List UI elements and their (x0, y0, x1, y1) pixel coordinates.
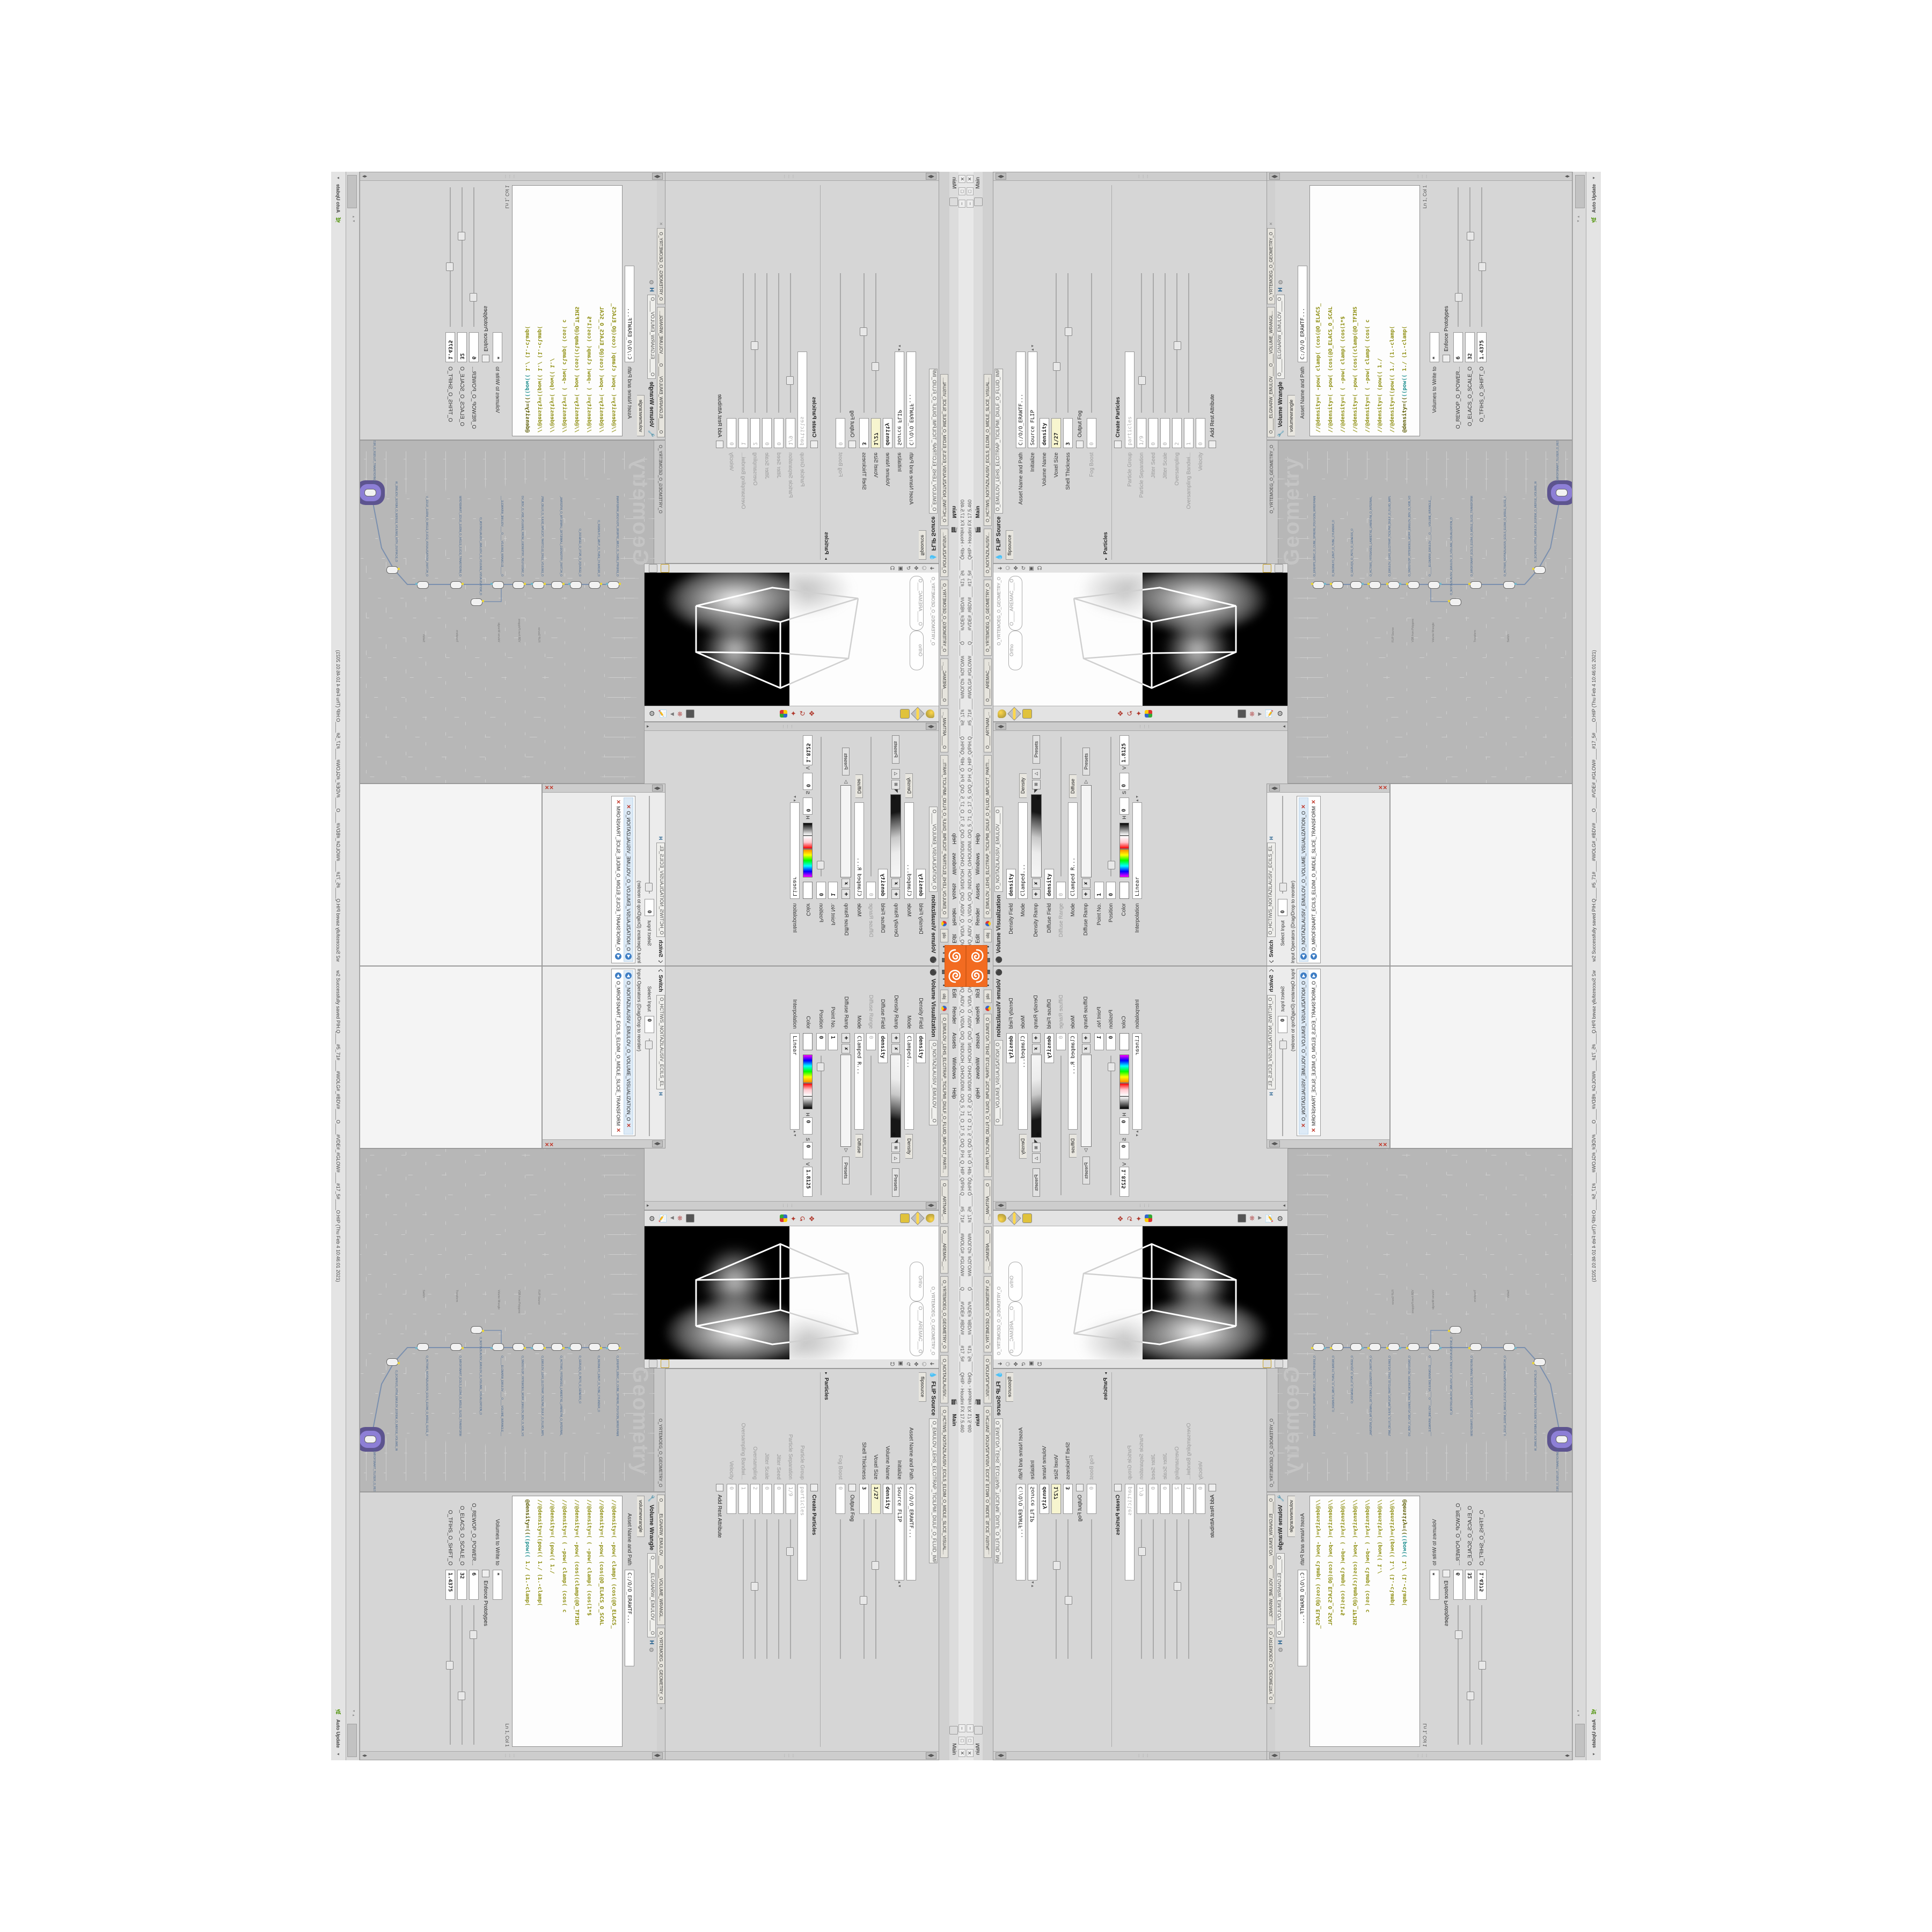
minimize-button[interactable]: ‒ (967, 1724, 974, 1732)
pane-arrow-left-icon[interactable]: ◂ (647, 1203, 649, 1209)
ramp-delete-point-icon[interactable]: ✘ (892, 1044, 901, 1053)
density-mode-select[interactable]: Clamped... (904, 1033, 914, 1130)
vex-code-editor[interactable]: //@density=( -pow( clamp( (cos(@O_ELACS_… (1309, 1496, 1420, 1747)
input-operator-row[interactable]: ◀ O_MROFSNART_ECILS_ELDIM_O_MIDLE_SLICE_… (613, 797, 623, 962)
remove-input-icon[interactable]: ✕ (1311, 1128, 1317, 1132)
switch-path[interactable]: O_HCTIWS_NOITAZILAUSIV_ECILS_EL (656, 843, 665, 937)
create-particles-checkbox[interactable] (810, 441, 818, 448)
handles-tool-icon[interactable]: ☊ (1037, 1361, 1042, 1367)
scale-tool-icon[interactable]: ▣ (898, 1361, 903, 1367)
ramp-flip-icon[interactable]: △ (1032, 769, 1041, 779)
diffuse-range-slider[interactable] (870, 737, 872, 876)
diffuse-range-field[interactable]: 0 (866, 1033, 876, 1050)
diffuse-ramp-widget[interactable] (841, 1055, 852, 1147)
position-slider[interactable] (821, 737, 822, 876)
fog-boost-field[interactable]: 0 (1087, 1484, 1096, 1514)
tab-geometry[interactable]: O_YRTEMOEG_O_GEOMETRY_O (984, 1276, 992, 1352)
tab-visualization[interactable]: O_NOITAZILAUSIV... (940, 529, 948, 577)
oversampling-bw-field[interactable]: 1 (738, 1484, 748, 1514)
menu-help[interactable]: Help (975, 1088, 981, 1099)
pane-arrow-right-icon[interactable]: ▸ (1567, 173, 1570, 179)
ramp-add-point-icon[interactable]: ✚ (842, 889, 851, 899)
output-fog-checkbox[interactable] (1076, 441, 1084, 448)
ortho-pill[interactable]: Ortho (1008, 1262, 1022, 1301)
v-field[interactable]: 1.8125 (803, 1167, 813, 1197)
flip-voxel-size-field[interactable]: 1/27 (1051, 1484, 1061, 1514)
pane-header[interactable]: ◀▶ ✕ ✕ (543, 784, 665, 793)
node-slice-switch[interactable] (417, 1343, 429, 1351)
density-mode-select[interactable]: Clamped... (904, 802, 914, 899)
ramp-delete-point-icon[interactable]: ✘ (892, 879, 901, 888)
ramp-marker-icon[interactable]: ▷ (1083, 1148, 1089, 1152)
diffuse-ramp-tab[interactable]: Diffuse (855, 1134, 863, 1158)
node-volume-visualization[interactable] (1450, 1326, 1461, 1334)
flip-shell-field[interactable]: 3 (859, 1484, 869, 1514)
pane-header[interactable]: ◀▶ ⋮⋮⋮ ◂ (993, 1201, 1287, 1210)
diffuse-range-field[interactable]: 0 (1056, 882, 1066, 899)
wheel-icon[interactable]: ⚙ (1277, 709, 1283, 718)
spare-shift-field[interactable]: 1.4375 (445, 1570, 455, 1600)
position-slider[interactable] (821, 1056, 822, 1195)
close-icon[interactable]: ✕ (549, 785, 553, 791)
ramp-delete-point-icon[interactable]: ✘ (1082, 879, 1091, 888)
wrangle-pane-tab-2[interactable]: O_YRTEMOEG_O_GEOMETRY_O (1267, 228, 1275, 304)
move-tool-icon[interactable]: ✥ (1013, 566, 1018, 572)
density-presets-button[interactable]: Presets (892, 735, 900, 764)
ramp-flip-icon[interactable]: △ (892, 1153, 901, 1163)
s-field[interactable]: 0 (803, 773, 813, 790)
view-diamond-icon[interactable] (911, 707, 924, 720)
pane-header[interactable]: ◀▶ ✕ ✕ (543, 1139, 665, 1148)
oversampling-field[interactable]: 2 (1172, 1484, 1182, 1514)
diffuse-ramp-widget[interactable] (1081, 1055, 1092, 1147)
section-collapse-icon[interactable]: ▸ (1103, 1372, 1108, 1374)
select-input-field[interactable]: 0 (645, 1016, 654, 1033)
pane-grip-icon[interactable]: ⋮⋮⋮ (782, 1754, 795, 1758)
node-volume-visualization[interactable] (471, 598, 482, 606)
density-ramp-tab[interactable]: Density (1019, 1134, 1027, 1159)
view-cone-icon[interactable] (926, 1214, 934, 1223)
density-ramp-widget[interactable] (891, 1055, 902, 1138)
ramp-delete-point-icon[interactable]: ✘ (1032, 879, 1041, 888)
ortho-pill[interactable]: Ortho (1008, 631, 1022, 670)
view-box-icon[interactable] (900, 709, 910, 719)
pane-grip-icon[interactable]: ⋮⋮⋮ (1138, 1204, 1151, 1208)
remove-input-icon[interactable]: ✕ (1311, 800, 1317, 804)
view-diamond-icon[interactable] (1007, 1211, 1021, 1225)
menu-render[interactable]: Render (951, 908, 957, 926)
volviz-path[interactable]: O_NOITAZILAUSIV_EMULOV____O (929, 807, 938, 892)
tab-mantra[interactable]: O____ARTNAM_... (940, 708, 948, 753)
pane-header[interactable]: ◀▶ ⋮⋮⋮ ◂ ▸ (1267, 172, 1572, 181)
render-ipr-icon[interactable]: ✦ (791, 1214, 796, 1223)
menu-assets[interactable]: Assets (951, 1033, 957, 1049)
oversampling-slider[interactable] (755, 273, 756, 413)
spare-power-field[interactable]: 6 (469, 1570, 479, 1600)
spare-shift-field[interactable]: 1.4375 (445, 332, 455, 362)
node-geometry-switch[interactable] (551, 1343, 563, 1351)
scale-tool-icon[interactable]: ▣ (898, 566, 903, 572)
pane-header[interactable]: ◀▶ ⋮⋮⋮ ◂ ▸ (1267, 1751, 1572, 1760)
wrangle-tab[interactable]: volumewrangle (637, 395, 645, 436)
wrangle-pane-tab-1[interactable]: O_____ELGNARW_EMULOV____O____VOLUME_WRAN… (657, 307, 665, 437)
render-region-icon[interactable]: ↺ (800, 709, 806, 718)
tab-geometry[interactable]: O_YRTEMOEG_O_GEOMETRY_O (984, 580, 992, 656)
node-geometry-switch[interactable] (1369, 581, 1381, 589)
node-volume-visualization[interactable] (471, 1326, 482, 1334)
input-operator-row[interactable]: ◀ O_NOITAZILAUSIV_EMULOV_O_VOLUME_VISUAL… (1299, 797, 1308, 962)
spare-scale-slider[interactable] (1469, 1605, 1470, 1745)
menu-assets[interactable]: Assets (975, 1033, 981, 1049)
particle-sep-slider[interactable] (790, 1519, 791, 1659)
handles-tool-icon[interactable]: ☊ (890, 566, 895, 572)
move-tool-icon[interactable]: ✥ (914, 566, 918, 572)
view-cone-icon[interactable] (998, 709, 1006, 718)
tab-close-icon[interactable]: ✕ (1269, 222, 1274, 226)
enforce-prototypes-checkbox[interactable] (1443, 1570, 1450, 1577)
gear-icon[interactable]: ⚙ (1277, 1647, 1284, 1652)
spare-scale-field[interactable]: 32 (1465, 332, 1475, 362)
magnet-snap-icon[interactable]: ⎈ (1249, 709, 1255, 718)
pane-arrow-right-icon[interactable]: ▸ (362, 173, 365, 179)
auto-update-select[interactable]: Auto Update (335, 1719, 341, 1748)
scrollbar-column[interactable]: ◂▸ (1572, 966, 1587, 1760)
layout-grid-icon[interactable] (950, 197, 958, 206)
oversampling-bw-slider[interactable] (1188, 273, 1189, 413)
rotate-tool-icon[interactable]: ↻ (906, 1361, 911, 1367)
flip-voxel-size-field[interactable]: 1/27 (871, 418, 881, 448)
flip-path[interactable]: O_EMULOV_LEHS_ELCITRAP_TICILPMI_DIULF_O_… (994, 1418, 1003, 1563)
jitter-seed-field[interactable]: 0 (1148, 418, 1158, 448)
node-vdb-from-polygons[interactable] (513, 581, 524, 589)
jitter-scale-field[interactable]: 0 (1160, 418, 1170, 448)
close-button[interactable]: ✕ (967, 1749, 974, 1757)
tab-slice-visual[interactable]: O_HCTIWS_NOITAZILAUSIV_ECILS_ELDIM_O_MID… (984, 374, 992, 526)
shell-slider[interactable] (1067, 1519, 1069, 1659)
pane-split-icon[interactable]: ◀▶ (1269, 173, 1280, 180)
diffuse-ramp-widget[interactable] (1081, 785, 1092, 877)
spare-power-slider[interactable] (473, 1605, 474, 1745)
color-swatch[interactable] (803, 882, 813, 899)
select-input-field[interactable]: 0 (645, 899, 654, 916)
color-swatch[interactable] (1119, 1033, 1129, 1050)
node-merge[interactable] (386, 566, 398, 574)
close-button[interactable]: ✕ (967, 175, 974, 183)
ramp-flip-icon[interactable]: △ (1032, 1153, 1041, 1163)
pane-split-icon[interactable]: ◀▶ (1269, 1140, 1280, 1147)
flip-volume-name-field[interactable]: density (1040, 418, 1049, 448)
desktop-tab-main-2[interactable]: Main (951, 177, 957, 189)
snap-grid-icon[interactable] (661, 564, 669, 573)
node-slice-switch[interactable] (1503, 581, 1515, 589)
hue-gradient-strip[interactable] (803, 849, 813, 877)
position-field[interactable]: 0 (1106, 1033, 1116, 1050)
render-region-icon[interactable]: ↺ (1126, 1214, 1132, 1223)
value-gradient-strip[interactable] (1119, 823, 1129, 836)
pane-grip-icon[interactable]: ⋮⋮⋮ (1416, 1754, 1429, 1758)
jitter-scale-slider[interactable] (766, 1519, 767, 1659)
node-vdb-from-polygons[interactable] (1408, 581, 1419, 589)
menu-render[interactable]: Render (951, 1006, 957, 1024)
wrangle-path[interactable]: O_____ELGNARW_EMULOV____O (647, 1553, 656, 1637)
v-field[interactable]: 1.8125 (1119, 1167, 1129, 1197)
flip-path[interactable]: O_EMULOV_LEHS_ELCITRAP_TICILPMI_DIULF_O_… (929, 1418, 938, 1563)
density-ramp-tab[interactable]: Density (1019, 773, 1027, 798)
menu-assets[interactable]: Assets (975, 883, 981, 899)
wrangle-asset-field[interactable]: C:/O/O_ERAWTF... (625, 1570, 634, 1666)
ramp-marker-icon[interactable]: ◥ (893, 1139, 899, 1143)
switch-path[interactable]: O_HCTIWS_NOITAZILAUSIV_ECILS_EL (1267, 995, 1276, 1089)
flip-tab[interactable]: flipsource (1006, 1372, 1013, 1402)
density-presets-button[interactable]: Presets (1033, 735, 1040, 764)
density-field[interactable]: density (1006, 1033, 1016, 1063)
point-no-field[interactable]: 1 (1094, 882, 1104, 899)
tab-flip-long[interactable]: O_EMULOV_LEHS_ELCITRAP_TICILPMI_DIULF_O_… (940, 755, 948, 918)
pane-header[interactable]: ◀▶ ⋮⋮⋮ ◂ (645, 722, 939, 731)
pane-split-icon[interactable]: ◀▶ (652, 1140, 663, 1147)
desktop-tab-main[interactable]: Main (951, 1414, 957, 1426)
view-box-icon[interactable] (1022, 709, 1032, 719)
node-slice-transform[interactable] (450, 581, 462, 589)
ramp-marker-icon[interactable]: ▷ (843, 780, 849, 784)
spare-scale-field[interactable]: 32 (457, 332, 467, 362)
handles-tool-icon[interactable]: ☊ (890, 1361, 895, 1367)
oversampling-field[interactable]: 2 (750, 1484, 760, 1514)
h-field[interactable]: 0 (803, 1117, 813, 1135)
diffuse-mode-select[interactable]: Clamped R... (1068, 802, 1078, 899)
section-collapse-icon[interactable]: ▸ (1103, 558, 1108, 560)
oversampling-bw-field[interactable]: 1 (1184, 1484, 1194, 1514)
particle-sep-field[interactable]: 1/9 (1137, 1484, 1146, 1514)
tab-close-icon[interactable]: ✕ (658, 222, 663, 226)
node-result-transform-selected[interactable] (1556, 489, 1568, 496)
camera-menu-pill[interactable]: O____AREMAC___O (1008, 1301, 1022, 1356)
desktop-tab-main[interactable]: Main (951, 506, 957, 518)
render-region-icon[interactable]: ↺ (1126, 709, 1132, 718)
node-slice-transform[interactable] (1470, 1343, 1482, 1351)
multi-color-icon[interactable] (780, 1214, 787, 1222)
tab-close-icon[interactable]: ✕ (1269, 1707, 1274, 1710)
tab-obj[interactable]: obj (984, 929, 992, 942)
velocity-field[interactable]: 0 (727, 1484, 736, 1514)
hue-gradient-strip[interactable] (1119, 849, 1129, 877)
close-button[interactable]: ✕ (959, 175, 966, 183)
notes-icon[interactable]: 📝 (1265, 1214, 1274, 1223)
s-field[interactable]: 0 (1119, 773, 1129, 790)
tab-mantra[interactable]: O____ARTNAM_... (984, 708, 992, 753)
add-rest-checkbox[interactable] (716, 441, 723, 448)
particle-sep-slider[interactable] (790, 273, 791, 413)
tab-obj[interactable]: obj (940, 990, 948, 1003)
node-flip-source[interactable] (1388, 1343, 1400, 1351)
pane-header[interactable]: ◀▶ ⋮⋮⋮ ◂ ▸ (360, 1751, 665, 1760)
input-operator-row[interactable]: ◀ O_MROFSNART_ECILS_ELDIM_O_MIDLE_SLICE_… (1309, 970, 1319, 1135)
handles-tool-icon[interactable]: ☊ (1037, 566, 1042, 572)
wrangle-pane-tab-1[interactable]: O_____ELGNARW_EMULOV____O____VOLUME_WRAN… (1267, 307, 1275, 437)
tab-flip-long[interactable]: O_EMULOV_LEHS_ELCITRAP_TICILPMI_DIULF_O_… (984, 1014, 992, 1177)
viewport-render-area[interactable]: O____AREMAC___O Ortho O_YRTEMOEG_O_GEOME… (993, 1226, 1287, 1359)
density-ramp-tab[interactable]: Density (905, 1134, 913, 1159)
menu-edit[interactable]: Edit (951, 934, 957, 943)
ramp-delete-point-icon[interactable]: ✘ (842, 1044, 851, 1053)
jitter-scale-field[interactable]: 0 (762, 418, 772, 448)
ramp-expand-icon[interactable]: ⊞ (1032, 1143, 1041, 1152)
diffuse-ramp-widget[interactable] (841, 785, 852, 877)
layout-grid-icon[interactable] (974, 1726, 983, 1735)
multi-color-icon[interactable] (1145, 1214, 1152, 1222)
node-box[interactable] (1350, 1343, 1362, 1351)
wrangle-pane-tab-2[interactable]: O_YRTEMOEG_O_GEOMETRY_O (657, 1628, 665, 1704)
node-box[interactable] (570, 1343, 582, 1351)
add-rest-checkbox[interactable] (716, 1484, 723, 1491)
diffuse-ramp-tab[interactable]: Diffuse (855, 774, 863, 798)
tab-geometry[interactable]: O_YRTEMOEG_O_GEOMETRY_O (940, 1276, 948, 1352)
node-result-transform-selected[interactable] (364, 1436, 376, 1443)
fog-boost-field[interactable]: 0 (1087, 418, 1096, 448)
saturation-gradient-strip[interactable] (1119, 1083, 1129, 1096)
wrangle-tab[interactable]: volumewrangle (1287, 395, 1295, 436)
notes-icon[interactable]: 📝 (658, 709, 667, 718)
v-field[interactable]: 1.8125 (803, 735, 813, 765)
pane-split-icon[interactable]: ◀▶ (926, 723, 936, 730)
view-diamond-icon[interactable] (911, 1211, 924, 1225)
diffuse-mode-select[interactable]: Clamped R... (854, 802, 864, 899)
menu-help[interactable]: Help (951, 833, 957, 845)
select-tool-icon[interactable]: ➔ (998, 1361, 1002, 1367)
render-ipr-icon[interactable]: ✦ (1136, 1214, 1141, 1223)
tab-close-icon[interactable]: ✕ (658, 1707, 663, 1710)
flip-initialize-select[interactable]: Source FLIP (1028, 1484, 1037, 1580)
auto-update-select[interactable]: Auto Update (1591, 1719, 1597, 1748)
tab-flip-long[interactable]: O_EMULOV_LEHS_ELCITRAP_TICILPMI_DIULF_O_… (984, 755, 992, 918)
output-fog-checkbox[interactable] (848, 441, 856, 448)
node-tube[interactable] (589, 1343, 601, 1351)
pane-grip-icon[interactable]: ⋮⋮⋮ (781, 1204, 794, 1208)
point-no-field[interactable]: 1 (828, 882, 838, 899)
tab-geometry[interactable]: O_YRTEMOEG_O_GEOMETRY_O (940, 580, 948, 656)
density-mode-select[interactable]: Clamped... (1018, 802, 1028, 899)
scrollbar-thumb[interactable] (347, 175, 357, 208)
close-icon[interactable]: ✕ (545, 1141, 549, 1147)
density-presets-button[interactable]: Presets (892, 1168, 900, 1197)
v-field[interactable]: 1.8125 (1119, 735, 1129, 765)
tab-slice-visual[interactable]: O_HCTIWS_NOITAZILAUSIV_ECILS_ELDIM_O_MID… (984, 1406, 992, 1558)
spare-scale-slider[interactable] (462, 1605, 463, 1745)
ramp-add-point-icon[interactable]: ✚ (1032, 889, 1041, 899)
pane-grip-icon[interactable]: ⋮⋮⋮ (1137, 1754, 1150, 1758)
pane-split-icon[interactable]: ◀▶ (652, 785, 663, 792)
move-tool-icon[interactable]: ✥ (1013, 1361, 1018, 1367)
flip-shell-field[interactable]: 3 (1063, 418, 1073, 448)
pane-grip-icon[interactable]: ⋮⋮⋮ (1416, 174, 1429, 179)
flip-tab[interactable]: flipsource (919, 1372, 926, 1402)
node-merge[interactable] (386, 1358, 398, 1366)
camera-menu-pill[interactable]: O____AREMAC___O (910, 1301, 924, 1356)
node-merge[interactable] (1534, 566, 1546, 574)
flip-asset-field[interactable]: C:/O/O_ERAWTF... (906, 1484, 916, 1580)
gear-icon[interactable]: ⚙ (648, 1647, 655, 1652)
node-slice-transform[interactable] (450, 1343, 462, 1351)
view-cone-icon[interactable] (926, 709, 934, 718)
layout-grid-icon[interactable] (974, 197, 983, 206)
h-field[interactable]: 0 (803, 797, 813, 815)
scene-viewport-pane[interactable]: ➔ ⚆ ✥ ↻ ▣ ☊ (644, 1210, 939, 1368)
fog-boost-slider[interactable] (840, 1519, 841, 1659)
rotate-tool-icon[interactable]: ↻ (906, 566, 911, 572)
close-icon[interactable]: ✕ (545, 785, 549, 791)
wrangle-pane-tab-2[interactable]: O_YRTEMOEG_O_GEOMETRY_O (657, 228, 665, 304)
diffuse-field[interactable]: density (1044, 1033, 1054, 1063)
input-operator-row[interactable]: ◀ O_MROFSNART_ECILS_ELDIM_O_MIDLE_SLICE_… (1309, 797, 1319, 962)
diffuse-range-slider[interactable] (1060, 737, 1062, 876)
spare-scale-field[interactable]: 32 (457, 1570, 467, 1600)
render-ipr-icon[interactable]: ✦ (791, 709, 796, 718)
node-geometry-switch[interactable] (1369, 1343, 1381, 1351)
h-field[interactable]: 0 (1119, 797, 1129, 815)
diffuse-ramp-tab[interactable]: Diffuse (1069, 774, 1077, 798)
pane-split-icon[interactable]: ◀▶ (1269, 1752, 1280, 1759)
particle-sep-field[interactable]: 1/9 (786, 1484, 795, 1514)
network-editor-pane[interactable]: obj O_YRTEMOEG_O_GEOMETRY_O Geometry O_E… (1267, 440, 1572, 784)
node-volume-wrangle[interactable] (1428, 1343, 1440, 1351)
tab-obj[interactable]: obj (984, 990, 992, 1003)
node-result-transform-selected[interactable] (1556, 1436, 1568, 1443)
minimize-button[interactable]: ‒ (959, 200, 966, 208)
viewport-render-area[interactable]: O____AREMAC___O Ortho O_YRTEMOEG_O_GEOME… (645, 573, 939, 706)
velocity-field[interactable]: 0 (1196, 418, 1205, 448)
node-box[interactable] (570, 581, 582, 589)
render-flipbook-icon[interactable]: ❖ (1117, 1214, 1124, 1223)
section-collapse-icon[interactable]: ▸ (824, 558, 829, 560)
voxel-size-slider[interactable] (875, 273, 876, 413)
scrollbar-column[interactable]: ◂▸ (1572, 172, 1587, 966)
diffuse-range-field[interactable]: 0 (1056, 1033, 1066, 1050)
h-field[interactable]: 0 (1119, 1117, 1129, 1135)
flip-initialize-select[interactable]: Source FLIP (895, 352, 904, 448)
render-ipr-icon[interactable]: ✦ (1136, 709, 1141, 718)
pane-header[interactable]: ◀▶ ⋮⋮⋮ ◂ ▸ (360, 172, 665, 181)
scrollbar-column[interactable]: ◂▸ (345, 966, 360, 1760)
jitter-seed-slider[interactable] (778, 1519, 779, 1659)
node-sphere[interactable] (608, 1343, 619, 1351)
particle-group-field[interactable]: particles (797, 1484, 807, 1580)
node-vdb-from-polygons[interactable] (513, 1343, 524, 1351)
input-operator-row[interactable]: ◀ O_MROFSNART_ECILS_ELDIM_O_MIDLE_SLICE_… (613, 970, 623, 1135)
pane-header[interactable]: ◀▶ ⋮⋮⋮ ◂ ▸ (645, 172, 939, 181)
pane-header[interactable]: ◀▶ ⋮⋮⋮ ◂ (645, 1201, 939, 1210)
ramp-expand-icon[interactable]: ⊞ (892, 780, 901, 789)
vex-code-editor[interactable]: //@density=( -pow( clamp( (cos(@O_ELACS_… (1309, 185, 1420, 436)
wrangle-path[interactable]: O_____ELGNARW_EMULOV____O (1276, 295, 1285, 379)
menu-assets[interactable]: Assets (951, 883, 957, 899)
spare-power-field[interactable]: 6 (1453, 332, 1463, 362)
spare-power-field[interactable]: 6 (1453, 1570, 1463, 1600)
ramp-expand-icon[interactable]: ⊞ (892, 1143, 901, 1152)
select-input-slider[interactable] (649, 1038, 650, 1136)
vex-code-editor[interactable]: //@density=( -pow( clamp( (cos(@O_ELACS_… (512, 1496, 623, 1747)
pane-header[interactable]: ◀▶ ✕ ✕ (1267, 784, 1389, 793)
scrollbar-thumb[interactable] (347, 1724, 357, 1757)
color-swatch[interactable] (803, 1033, 813, 1050)
spare-shift-slider[interactable] (1481, 1605, 1482, 1745)
velocity-field[interactable]: 0 (1196, 1484, 1205, 1514)
pane-grip-icon[interactable]: ⋮⋮⋮ (1137, 174, 1150, 179)
menu-help[interactable]: Help (951, 1088, 957, 1099)
camera-lock-icon[interactable] (1275, 1359, 1283, 1368)
render-region-icon[interactable]: ↺ (800, 1214, 806, 1223)
spare-shift-slider[interactable] (1481, 187, 1482, 327)
shell-slider[interactable] (863, 1519, 865, 1659)
